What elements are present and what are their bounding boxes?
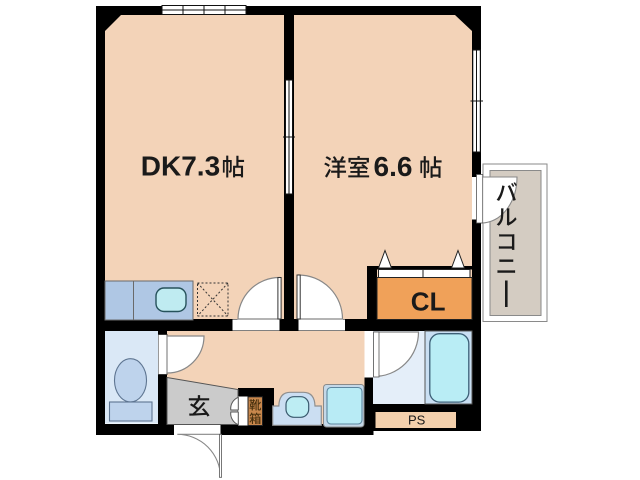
svg-text:DK7.3: DK7.3 [141, 151, 220, 182]
svg-text:PS: PS [408, 412, 426, 427]
svg-text:6.6: 6.6 [374, 151, 413, 182]
svg-text:CL: CL [411, 287, 446, 317]
